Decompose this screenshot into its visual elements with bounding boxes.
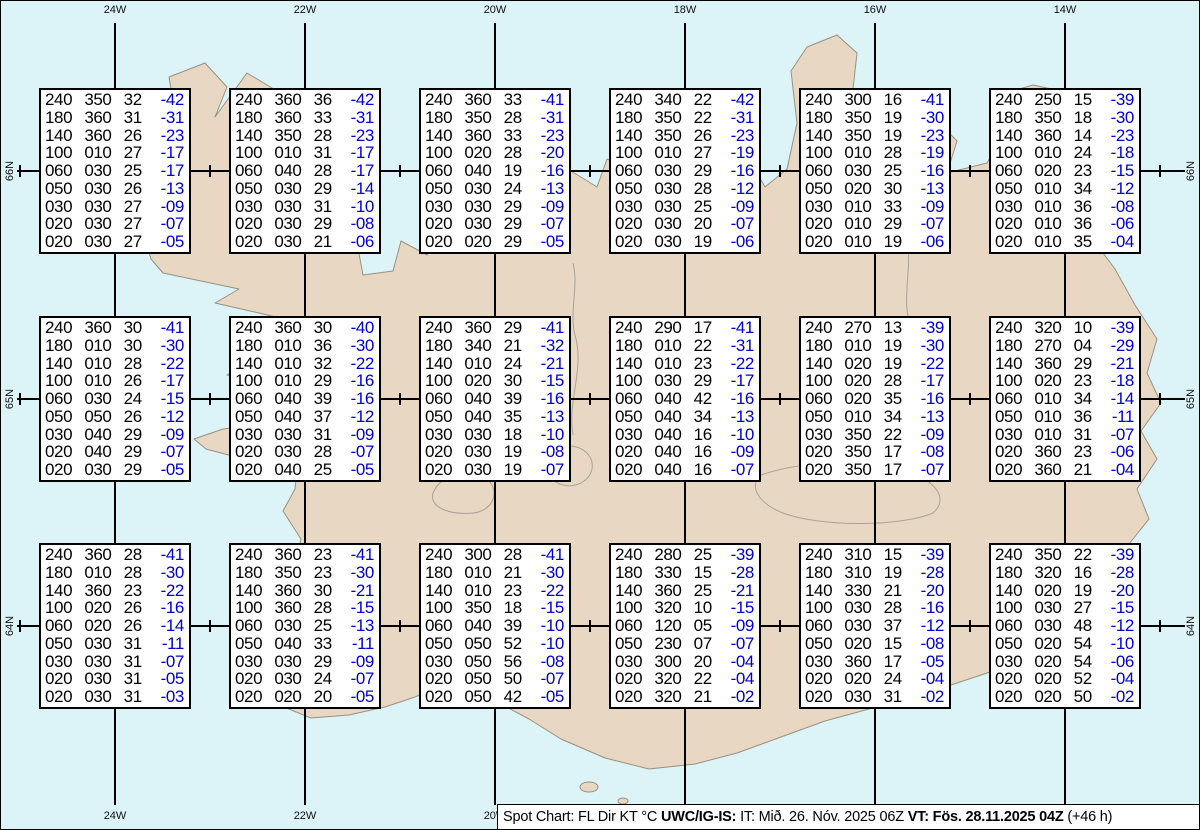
temperature-value: -15 bbox=[151, 390, 184, 407]
wind-speed-value: 15 bbox=[1074, 91, 1098, 108]
wind-speed-value: 28 bbox=[314, 599, 338, 616]
temperature-value: -15 bbox=[531, 372, 564, 389]
wind-speed-value: 28 bbox=[124, 355, 148, 372]
temperature-value: -06 bbox=[721, 233, 754, 250]
temperature-value: -15 bbox=[341, 599, 374, 616]
flight-level-value: 100 bbox=[615, 372, 651, 389]
temperature-value: -09 bbox=[341, 653, 374, 670]
wind-speed-value: 26 bbox=[124, 408, 148, 425]
flight-level-value: 140 bbox=[805, 127, 841, 144]
temperature-value: -07 bbox=[1101, 426, 1134, 443]
wind-speed-value: 16 bbox=[1074, 564, 1098, 581]
wind-direction-value: 040 bbox=[84, 426, 120, 443]
temperature-value: -30 bbox=[911, 109, 944, 126]
wind-direction-value: 360 bbox=[274, 109, 310, 126]
temperature-value: -02 bbox=[721, 688, 754, 705]
wind-speed-value: 31 bbox=[1074, 426, 1098, 443]
spot-data-row: 05004033-11 bbox=[235, 635, 374, 652]
wind-speed-value: 35 bbox=[1074, 233, 1098, 250]
temperature-value: -05 bbox=[151, 233, 184, 250]
flight-level-value: 100 bbox=[45, 144, 81, 161]
wind-direction-value: 230 bbox=[654, 635, 690, 652]
flight-level-value: 060 bbox=[615, 390, 651, 407]
wind-direction-value: 320 bbox=[654, 670, 690, 687]
wind-speed-value: 29 bbox=[124, 443, 148, 460]
spot-data-row: 02003031-03 bbox=[45, 688, 184, 705]
temperature-value: -13 bbox=[911, 180, 944, 197]
spot-data-row: 18035018-30 bbox=[995, 109, 1134, 126]
temperature-value: -16 bbox=[341, 372, 374, 389]
temperature-value: -07 bbox=[721, 635, 754, 652]
spot-data-row: 06002023-15 bbox=[995, 162, 1134, 179]
wind-direction-value: 030 bbox=[654, 233, 690, 250]
flight-level-value: 240 bbox=[235, 546, 271, 563]
wind-direction-value: 050 bbox=[464, 670, 500, 687]
spot-data-row: 03003029-09 bbox=[425, 198, 564, 215]
spot-data-row: 10035018-15 bbox=[425, 599, 564, 616]
temperature-value: -22 bbox=[151, 582, 184, 599]
temperature-value: -08 bbox=[1101, 198, 1134, 215]
station-box-16W-64N: 24031015-3918031019-2814033021-201000302… bbox=[799, 543, 951, 709]
spot-data-row: 05003029-14 bbox=[235, 180, 374, 197]
temperature-value: -13 bbox=[531, 180, 564, 197]
wind-speed-value: 34 bbox=[884, 408, 908, 425]
wind-direction-value: 040 bbox=[84, 443, 120, 460]
temperature-value: -07 bbox=[531, 670, 564, 687]
wind-direction-value: 030 bbox=[654, 180, 690, 197]
flight-level-value: 140 bbox=[45, 355, 81, 372]
flight-level-value: 140 bbox=[235, 582, 271, 599]
spot-data-row: 24027013-39 bbox=[805, 319, 944, 336]
footer-segment: UWC/IG-IS: bbox=[661, 809, 736, 825]
flight-level-value: 180 bbox=[235, 109, 271, 126]
flight-level-value: 050 bbox=[615, 635, 651, 652]
wind-direction-value: 250 bbox=[1034, 91, 1070, 108]
flight-level-value: 020 bbox=[45, 233, 81, 250]
flight-level-value: 020 bbox=[235, 215, 271, 232]
wind-speed-value: 27 bbox=[124, 198, 148, 215]
wind-direction-value: 030 bbox=[464, 180, 500, 197]
wind-direction-value: 350 bbox=[844, 461, 880, 478]
flight-level-value: 060 bbox=[805, 390, 841, 407]
spot-data-row: 03005056-08 bbox=[425, 653, 564, 670]
flight-level-value: 030 bbox=[615, 426, 651, 443]
wind-direction-value: 360 bbox=[274, 599, 310, 616]
flight-level-value: 140 bbox=[235, 127, 271, 144]
wind-speed-value: 36 bbox=[1074, 408, 1098, 425]
wind-speed-value: 26 bbox=[124, 127, 148, 144]
spot-data-row: 03003029-09 bbox=[235, 653, 374, 670]
flight-level-value: 050 bbox=[425, 180, 461, 197]
temperature-value: -19 bbox=[911, 144, 944, 161]
wind-speed-value: 36 bbox=[314, 91, 338, 108]
temperature-value: -04 bbox=[911, 670, 944, 687]
temperature-value: -28 bbox=[721, 564, 754, 581]
wind-speed-value: 31 bbox=[124, 109, 148, 126]
temperature-value: -16 bbox=[721, 390, 754, 407]
wind-speed-value: 19 bbox=[694, 233, 718, 250]
spot-data-row: 14001032-22 bbox=[235, 355, 374, 372]
spot-data-row: 03003027-09 bbox=[45, 198, 184, 215]
spot-data-row: 02003027-07 bbox=[45, 215, 184, 232]
spot-data-row: 10001026-17 bbox=[45, 372, 184, 389]
wind-speed-value: 15 bbox=[694, 564, 718, 581]
wind-speed-value: 30 bbox=[314, 582, 338, 599]
temperature-value: -07 bbox=[151, 443, 184, 460]
flight-level-value: 020 bbox=[425, 215, 461, 232]
spot-data-row: 02036021-04 bbox=[995, 461, 1134, 478]
wind-direction-value: 360 bbox=[274, 319, 310, 336]
wind-speed-value: 28 bbox=[884, 144, 908, 161]
flight-level-value: 030 bbox=[235, 198, 271, 215]
footer-segment: VT: Fös. 28.11.2025 04Z bbox=[908, 809, 1064, 825]
wind-speed-value: 27 bbox=[124, 144, 148, 161]
temperature-value: -13 bbox=[341, 617, 374, 634]
wind-direction-value: 350 bbox=[654, 109, 690, 126]
flight-level-value: 240 bbox=[615, 546, 651, 563]
temperature-value: -13 bbox=[721, 408, 754, 425]
flight-level-value: 020 bbox=[235, 443, 271, 460]
wind-direction-value: 360 bbox=[84, 127, 120, 144]
spot-data-row: 24029017-41 bbox=[615, 319, 754, 336]
temperature-value: -39 bbox=[911, 546, 944, 563]
spot-data-row: 05003031-11 bbox=[45, 635, 184, 652]
flight-level-value: 240 bbox=[615, 91, 651, 108]
temperature-value: -31 bbox=[721, 337, 754, 354]
wind-direction-value: 020 bbox=[844, 670, 880, 687]
temperature-value: -30 bbox=[151, 337, 184, 354]
flight-level-value: 140 bbox=[805, 582, 841, 599]
spot-data-row: 02001029-07 bbox=[805, 215, 944, 232]
flight-level-value: 020 bbox=[995, 670, 1031, 687]
temperature-value: -30 bbox=[341, 564, 374, 581]
wind-direction-value: 030 bbox=[464, 426, 500, 443]
wind-direction-value: 350 bbox=[274, 127, 310, 144]
spot-data-row: 14002019-20 bbox=[995, 582, 1134, 599]
spot-data-row: 02004016-07 bbox=[615, 461, 754, 478]
spot-data-row: 10001029-16 bbox=[235, 372, 374, 389]
temperature-value: -22 bbox=[151, 355, 184, 372]
wind-direction-value: 040 bbox=[654, 426, 690, 443]
wind-speed-value: 26 bbox=[694, 127, 718, 144]
temperature-value: -10 bbox=[531, 426, 564, 443]
spot-data-row: 03004016-10 bbox=[615, 426, 754, 443]
temperature-value: -03 bbox=[151, 688, 184, 705]
spot-data-row: 02001036-06 bbox=[995, 215, 1134, 232]
spot-data-row: 24034022-42 bbox=[615, 91, 754, 108]
wind-speed-value: 17 bbox=[694, 319, 718, 336]
wind-speed-value: 36 bbox=[314, 337, 338, 354]
wind-speed-value: 29 bbox=[504, 233, 528, 250]
flight-level-value: 140 bbox=[615, 355, 651, 372]
temperature-value: -41 bbox=[151, 319, 184, 336]
wind-direction-value: 360 bbox=[654, 582, 690, 599]
wind-speed-value: 25 bbox=[124, 162, 148, 179]
wind-direction-value: 310 bbox=[844, 564, 880, 581]
wind-speed-value: 10 bbox=[694, 599, 718, 616]
temperature-value: -09 bbox=[911, 426, 944, 443]
spot-data-row: 02002029-05 bbox=[425, 233, 564, 250]
spot-data-row: 02003020-07 bbox=[615, 215, 754, 232]
wind-direction-value: 360 bbox=[84, 109, 120, 126]
spot-data-row: 06004028-17 bbox=[235, 162, 374, 179]
flight-level-value: 030 bbox=[425, 426, 461, 443]
flight-level-value: 030 bbox=[615, 198, 651, 215]
wind-direction-value: 020 bbox=[84, 617, 120, 634]
temperature-value: -07 bbox=[341, 670, 374, 687]
footer-segment: Spot Chart: FL Dir KT °C bbox=[503, 809, 661, 825]
wind-direction-value: 050 bbox=[464, 653, 500, 670]
temperature-value: -17 bbox=[151, 162, 184, 179]
wind-speed-value: 28 bbox=[124, 564, 148, 581]
flight-level-value: 180 bbox=[45, 337, 81, 354]
wind-direction-value: 030 bbox=[84, 670, 120, 687]
wind-direction-value: 010 bbox=[1034, 390, 1070, 407]
wind-direction-value: 300 bbox=[844, 91, 880, 108]
wind-speed-value: 25 bbox=[694, 582, 718, 599]
wind-direction-value: 030 bbox=[84, 162, 120, 179]
temperature-value: -23 bbox=[531, 127, 564, 144]
temperature-value: -41 bbox=[341, 546, 374, 563]
flight-level-value: 050 bbox=[995, 180, 1031, 197]
spot-data-row: 14036023-22 bbox=[45, 582, 184, 599]
temperature-value: -15 bbox=[1101, 599, 1134, 616]
wind-direction-value: 030 bbox=[1034, 599, 1070, 616]
flight-level-value: 030 bbox=[995, 653, 1031, 670]
station-box-18W-64N: 24028025-3918033015-2814036025-211003201… bbox=[609, 543, 761, 709]
spot-data-row: 14036025-21 bbox=[615, 582, 754, 599]
wind-direction-value: 320 bbox=[1034, 319, 1070, 336]
flight-level-value: 020 bbox=[45, 688, 81, 705]
wind-speed-value: 22 bbox=[694, 337, 718, 354]
temperature-value: -30 bbox=[341, 337, 374, 354]
wind-speed-value: 21 bbox=[314, 233, 338, 250]
wind-direction-value: 010 bbox=[844, 215, 880, 232]
spot-data-row: 14035028-23 bbox=[235, 127, 374, 144]
flight-level-value: 020 bbox=[425, 670, 461, 687]
wind-direction-value: 360 bbox=[844, 653, 880, 670]
wind-speed-value: 26 bbox=[124, 372, 148, 389]
spot-data-row: 14035026-23 bbox=[615, 127, 754, 144]
wind-direction-value: 360 bbox=[84, 582, 120, 599]
spot-data-row: 24036030-41 bbox=[45, 319, 184, 336]
spot-data-row: 06001034-14 bbox=[995, 390, 1134, 407]
temperature-value: -28 bbox=[911, 564, 944, 581]
wind-speed-value: 24 bbox=[314, 670, 338, 687]
flight-level-value: 020 bbox=[615, 688, 651, 705]
wind-speed-value: 21 bbox=[504, 564, 528, 581]
flight-level-value: 020 bbox=[425, 443, 461, 460]
station-box-14W-64N: 24035022-3918032016-2814002019-201000302… bbox=[989, 543, 1141, 709]
spot-data-row: 14036026-23 bbox=[45, 127, 184, 144]
flight-level-value: 180 bbox=[995, 109, 1031, 126]
wind-speed-value: 31 bbox=[124, 688, 148, 705]
wind-speed-value: 29 bbox=[504, 215, 528, 232]
wind-speed-value: 54 bbox=[1074, 635, 1098, 652]
wind-direction-value: 010 bbox=[84, 564, 120, 581]
wind-direction-value: 020 bbox=[844, 180, 880, 197]
spot-data-row: 05002015-08 bbox=[805, 635, 944, 652]
wind-direction-value: 320 bbox=[1034, 564, 1070, 581]
flight-level-value: 020 bbox=[805, 215, 841, 232]
spot-data-row: 24035022-39 bbox=[995, 546, 1134, 563]
flight-level-value: 050 bbox=[45, 635, 81, 652]
spot-data-row: 02003019-07 bbox=[425, 461, 564, 478]
temperature-value: -30 bbox=[151, 564, 184, 581]
flight-level-value: 100 bbox=[425, 144, 461, 161]
temperature-value: -12 bbox=[911, 617, 944, 634]
temperature-value: -16 bbox=[911, 390, 944, 407]
wind-direction-value: 030 bbox=[274, 653, 310, 670]
wind-direction-value: 030 bbox=[84, 688, 120, 705]
wind-speed-value: 28 bbox=[314, 443, 338, 460]
temperature-value: -13 bbox=[531, 408, 564, 425]
wind-speed-value: 24 bbox=[884, 670, 908, 687]
wind-speed-value: 27 bbox=[694, 144, 718, 161]
spot-data-row: 10003029-17 bbox=[615, 372, 754, 389]
flight-level-value: 050 bbox=[805, 635, 841, 652]
spot-data-row: 10003028-16 bbox=[805, 599, 944, 616]
wind-speed-value: 23 bbox=[504, 582, 528, 599]
temperature-value: -06 bbox=[911, 233, 944, 250]
wind-direction-value: 360 bbox=[274, 546, 310, 563]
temperature-value: -30 bbox=[531, 564, 564, 581]
flight-level-value: 060 bbox=[235, 390, 271, 407]
wind-speed-value: 21 bbox=[884, 582, 908, 599]
flight-level-value: 020 bbox=[995, 215, 1031, 232]
flight-level-value: 060 bbox=[615, 162, 651, 179]
spot-data-row: 24030016-41 bbox=[805, 91, 944, 108]
spot-data-row: 02002024-04 bbox=[805, 670, 944, 687]
wind-direction-value: 010 bbox=[274, 144, 310, 161]
flight-level-value: 020 bbox=[995, 688, 1031, 705]
flight-level-value: 100 bbox=[805, 372, 841, 389]
spot-data-row: 14036014-23 bbox=[995, 127, 1134, 144]
wind-direction-value: 030 bbox=[274, 215, 310, 232]
temperature-value: -31 bbox=[341, 109, 374, 126]
temperature-value: -02 bbox=[911, 688, 944, 705]
station-box-18W-66N: 24034022-4218035022-3114035026-231000102… bbox=[609, 88, 761, 254]
wind-speed-value: 23 bbox=[1074, 443, 1098, 460]
wind-direction-value: 040 bbox=[274, 461, 310, 478]
temperature-value: -07 bbox=[531, 461, 564, 478]
temperature-value: -12 bbox=[1101, 617, 1134, 634]
temperature-value: -05 bbox=[531, 688, 564, 705]
wind-direction-value: 030 bbox=[84, 180, 120, 197]
wind-direction-value: 360 bbox=[1034, 461, 1070, 478]
wind-direction-value: 030 bbox=[844, 162, 880, 179]
spot-data-row: 02032022-04 bbox=[615, 670, 754, 687]
flight-level-value: 020 bbox=[615, 670, 651, 687]
wind-direction-value: 010 bbox=[464, 582, 500, 599]
wind-direction-value: 020 bbox=[844, 372, 880, 389]
spot-data-row: 14036029-21 bbox=[995, 355, 1134, 372]
spot-data-row: 02003029-07 bbox=[425, 215, 564, 232]
temperature-value: -08 bbox=[531, 653, 564, 670]
flight-level-value: 140 bbox=[615, 127, 651, 144]
wind-speed-value: 23 bbox=[1074, 162, 1098, 179]
wind-direction-value: 030 bbox=[844, 599, 880, 616]
wind-direction-value: 010 bbox=[274, 337, 310, 354]
wind-direction-value: 360 bbox=[274, 91, 310, 108]
wind-speed-value: 25 bbox=[694, 198, 718, 215]
wind-direction-value: 030 bbox=[844, 688, 880, 705]
wind-speed-value: 30 bbox=[314, 319, 338, 336]
station-box-14W-65N: 24032010-3918027004-2914036029-211000202… bbox=[989, 316, 1141, 482]
wind-direction-value: 030 bbox=[464, 215, 500, 232]
temperature-value: -09 bbox=[531, 198, 564, 215]
spot-data-row: 18027004-29 bbox=[995, 337, 1134, 354]
flight-level-value: 060 bbox=[425, 162, 461, 179]
wind-direction-value: 030 bbox=[274, 233, 310, 250]
wind-direction-value: 020 bbox=[1034, 670, 1070, 687]
flight-level-value: 240 bbox=[615, 319, 651, 336]
temperature-value: -17 bbox=[341, 144, 374, 161]
spot-data-row: 06002035-16 bbox=[805, 390, 944, 407]
flight-level-value: 050 bbox=[45, 180, 81, 197]
spot-data-row: 02001019-06 bbox=[805, 233, 944, 250]
wind-speed-value: 31 bbox=[314, 426, 338, 443]
wind-direction-value: 030 bbox=[1034, 617, 1070, 634]
wind-direction-value: 350 bbox=[274, 564, 310, 581]
wind-speed-value: 36 bbox=[1074, 198, 1098, 215]
flight-level-value: 020 bbox=[45, 443, 81, 460]
wind-direction-value: 020 bbox=[844, 635, 880, 652]
wind-speed-value: 31 bbox=[314, 198, 338, 215]
temperature-value: -39 bbox=[721, 546, 754, 563]
wind-direction-value: 350 bbox=[844, 127, 880, 144]
temperature-value: -09 bbox=[721, 443, 754, 460]
wind-direction-value: 350 bbox=[844, 443, 880, 460]
temperature-value: -04 bbox=[1101, 670, 1134, 687]
temperature-value: -10 bbox=[721, 426, 754, 443]
wind-speed-value: 16 bbox=[884, 91, 908, 108]
temperature-value: -05 bbox=[341, 461, 374, 478]
temperature-value: -41 bbox=[531, 91, 564, 108]
spot-data-row: 02003021-06 bbox=[235, 233, 374, 250]
spot-data-row: 06002026-14 bbox=[45, 617, 184, 634]
wind-direction-value: 030 bbox=[84, 390, 120, 407]
spot-data-row: 05023007-07 bbox=[615, 635, 754, 652]
spot-data-row: 06003024-15 bbox=[45, 390, 184, 407]
station-box-16W-65N: 24027013-3918001019-3014002019-221000202… bbox=[799, 316, 951, 482]
wind-direction-value: 010 bbox=[1034, 198, 1070, 215]
wind-speed-value: 24 bbox=[504, 355, 528, 372]
flight-level-value: 180 bbox=[995, 564, 1031, 581]
spot-data-row: 18033015-28 bbox=[615, 564, 754, 581]
flight-level-value: 030 bbox=[235, 653, 271, 670]
spot-data-row: 06003029-16 bbox=[615, 162, 754, 179]
flight-level-value: 140 bbox=[615, 582, 651, 599]
temperature-value: -15 bbox=[1101, 162, 1134, 179]
flight-level-value: 030 bbox=[805, 198, 841, 215]
flight-level-value: 240 bbox=[995, 91, 1031, 108]
temperature-value: -20 bbox=[1101, 582, 1134, 599]
wind-speed-value: 29 bbox=[314, 215, 338, 232]
temperature-value: -16 bbox=[911, 162, 944, 179]
temperature-value: -10 bbox=[531, 617, 564, 634]
flight-level-value: 100 bbox=[45, 372, 81, 389]
wind-direction-value: 010 bbox=[1034, 426, 1070, 443]
wind-direction-value: 010 bbox=[844, 198, 880, 215]
wind-direction-value: 030 bbox=[84, 198, 120, 215]
wind-speed-value: 35 bbox=[884, 390, 908, 407]
wind-speed-value: 05 bbox=[694, 617, 718, 634]
spot-data-row: 24036028-41 bbox=[45, 546, 184, 563]
wind-direction-value: 050 bbox=[464, 635, 500, 652]
station-boxes-layer: 24035032-4218036031-3114036026-231000102… bbox=[1, 1, 1199, 829]
temperature-value: -04 bbox=[1101, 461, 1134, 478]
